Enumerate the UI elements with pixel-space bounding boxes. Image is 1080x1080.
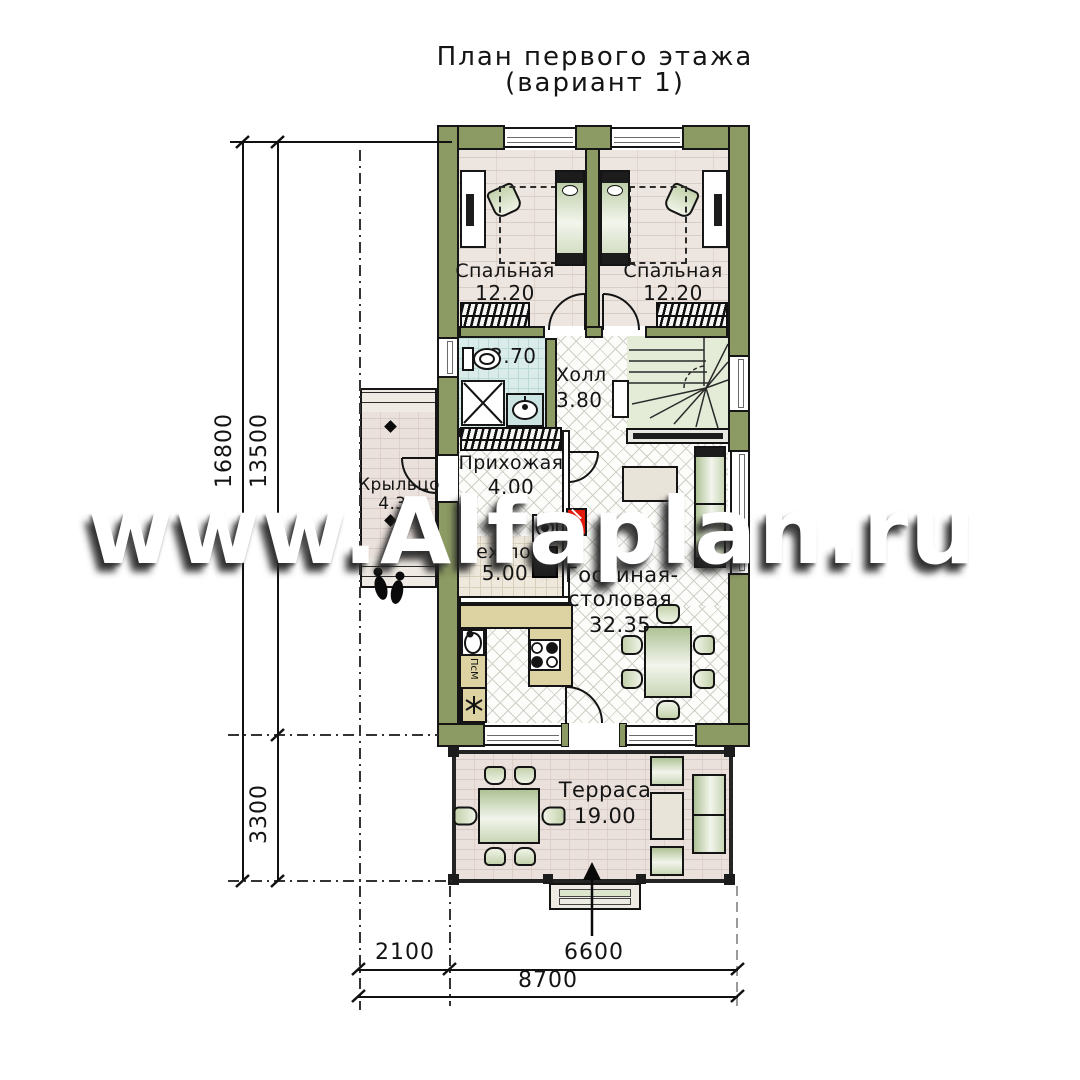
entry-direction-arrow [583,862,601,936]
bathroom-sink [513,396,537,419]
watermark: www.Alfaplan.ru [88,478,978,585]
shower-cross [464,383,502,423]
toilet [463,348,500,370]
stove-burners [532,643,557,667]
staircase [629,338,728,428]
fridge-snowflake-icon [466,696,482,714]
floor-plan-page: План первого этажа (вариант 1) [0,0,1080,1080]
kitchen-sink [465,632,481,654]
